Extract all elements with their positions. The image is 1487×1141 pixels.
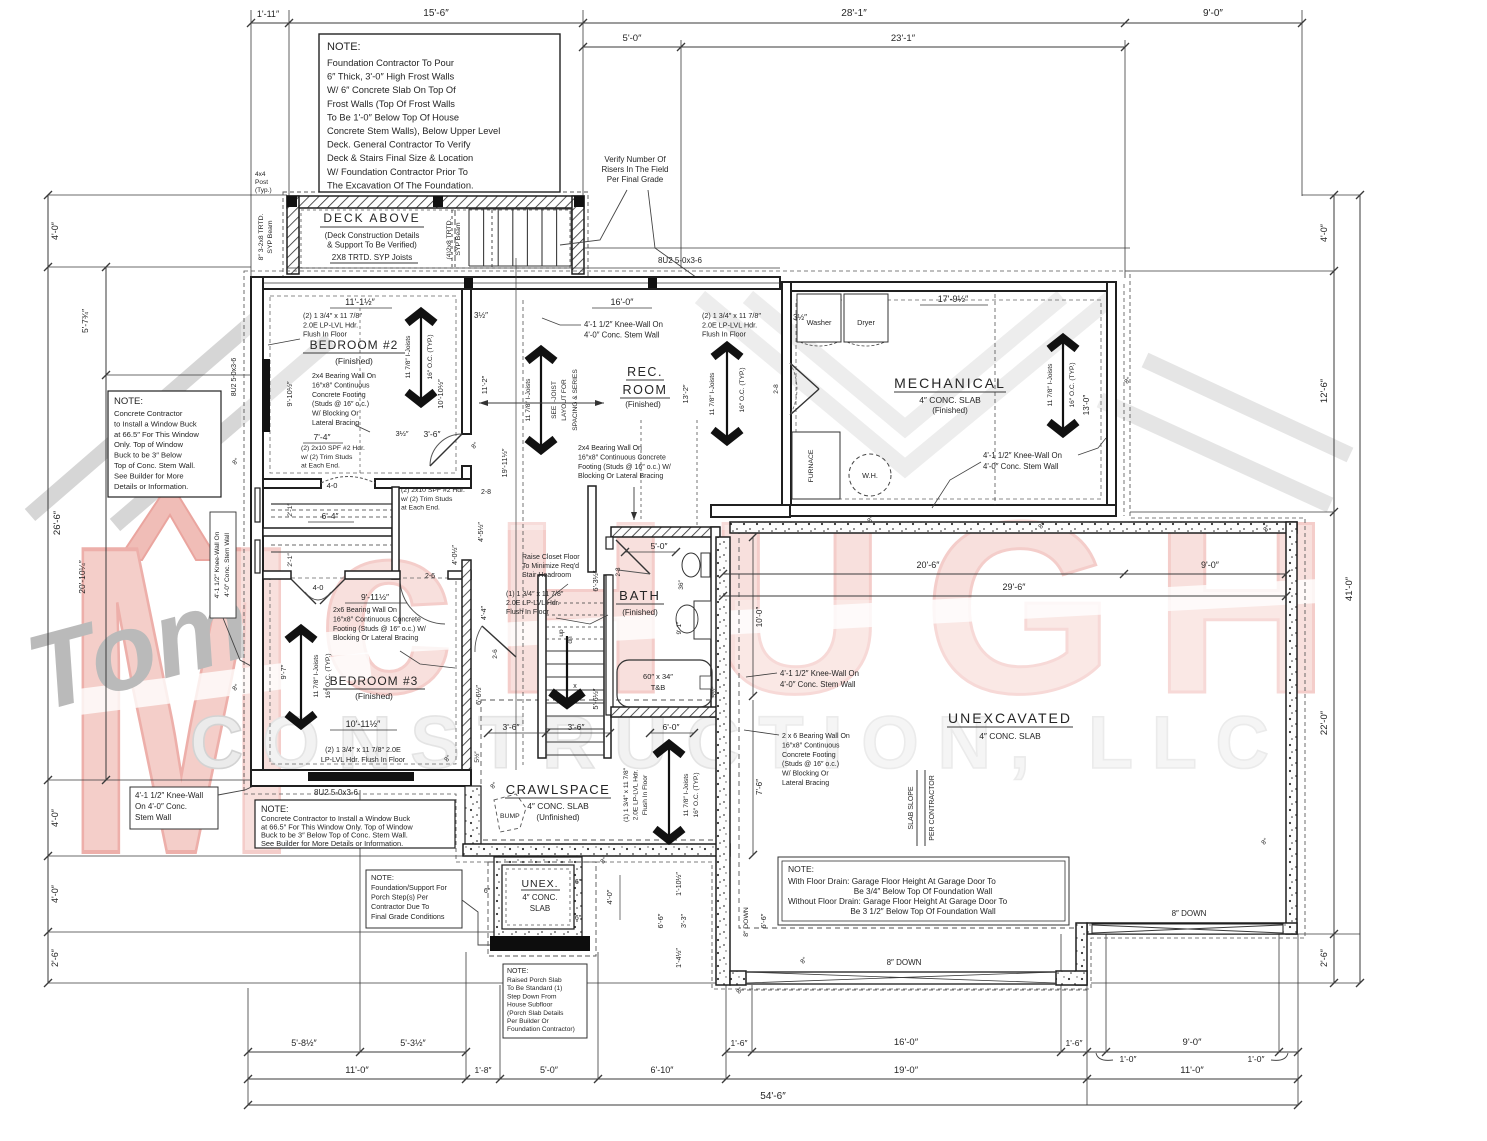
- svg-text:4'-0″: 4'-0″: [1319, 223, 1329, 242]
- svg-text:16″ O.C. (TYP.): 16″ O.C. (TYP.): [1069, 362, 1076, 407]
- svg-text:4x4: 4x4: [255, 171, 266, 178]
- svg-text:16″x8″ Continuous Concrete: 16″x8″ Continuous Concrete: [578, 454, 666, 461]
- svg-text:5'-0″: 5'-0″: [540, 1065, 559, 1075]
- svg-text:19'-0″: 19'-0″: [894, 1065, 919, 1076]
- svg-text:SYP Beam: SYP Beam: [455, 222, 462, 255]
- svg-text:9'-0″: 9'-0″: [1203, 8, 1223, 19]
- svg-text:60″ x 34″: 60″ x 34″: [643, 672, 673, 681]
- svg-text:16″x8″ Continuous: 16″x8″ Continuous: [312, 382, 370, 389]
- svg-text:41'-0″: 41'-0″: [1344, 576, 1355, 601]
- svg-text:4'-0″ Conc. Stem Wall: 4'-0″ Conc. Stem Wall: [584, 331, 660, 340]
- svg-text:11 7/8″ I-Joists: 11 7/8″ I-Joists: [405, 335, 412, 379]
- svg-text:7'-4″: 7'-4″: [314, 432, 331, 442]
- svg-text:1'-0″: 1'-0″: [1120, 1054, 1137, 1064]
- svg-text:Without Floor Drain: Garage Fl: Without Floor Drain: Garage Floor Height…: [788, 897, 1008, 906]
- svg-text:8″ DOWN: 8″ DOWN: [1172, 909, 1207, 918]
- svg-text:6'-6½″: 6'-6½″: [475, 685, 483, 705]
- svg-text:4'-0½″: 4'-0½″: [451, 545, 459, 565]
- svg-text:at Each End.: at Each End.: [301, 463, 340, 470]
- svg-text:6'-10″: 6'-10″: [651, 1065, 675, 1075]
- svg-text:6″: 6″: [575, 915, 582, 922]
- svg-text:Step Down From: Step Down From: [507, 993, 557, 1000]
- svg-text:5'-0″: 5'-0″: [623, 33, 643, 44]
- svg-text:MECHANICAL: MECHANICAL: [894, 375, 1006, 391]
- svg-text:2-6: 2-6: [492, 649, 499, 659]
- svg-text:Washer: Washer: [807, 318, 832, 327]
- svg-text:6″ Thick, 3'-0″ High Frost Wal: 6″ Thick, 3'-0″ High Frost Walls: [327, 72, 455, 82]
- svg-text:10'-10½″: 10'-10½″: [436, 379, 445, 409]
- svg-text:16'-0″: 16'-0″: [894, 1037, 919, 1048]
- svg-text:x: x: [573, 683, 577, 690]
- svg-text:NOTE:: NOTE:: [788, 864, 814, 874]
- svg-text:3½″: 3½″: [474, 311, 488, 320]
- svg-text:5'-0″: 5'-0″: [651, 541, 668, 551]
- svg-text:5½″: 5½″: [710, 686, 718, 698]
- svg-text:8″ DOWN: 8″ DOWN: [743, 907, 750, 937]
- svg-text:W/ 6″ Concrete Slab On Top Of: W/ 6″ Concrete Slab On Top Of: [327, 85, 456, 95]
- svg-text:2-8: 2-8: [615, 567, 622, 577]
- svg-text:2x4 Bearing Wall On: 2x4 Bearing Wall On: [312, 373, 376, 380]
- svg-text:Post: Post: [255, 179, 268, 186]
- svg-text:(2) 2x10 SPF #2 Hdr.: (2) 2x10 SPF #2 Hdr.: [301, 445, 365, 452]
- svg-text:6″: 6″: [484, 888, 491, 895]
- svg-text:NOTE:: NOTE:: [507, 968, 528, 975]
- svg-text:9'-11½″: 9'-11½″: [361, 592, 389, 602]
- svg-text:SLAB: SLAB: [530, 904, 550, 913]
- svg-text:11'-2″: 11'-2″: [480, 375, 489, 394]
- svg-text:NOTE:: NOTE:: [261, 804, 289, 814]
- svg-text:22'-0″: 22'-0″: [1319, 710, 1330, 735]
- svg-text:SEE I-JOIST: SEE I-JOIST: [551, 381, 558, 419]
- svg-text:ROOM: ROOM: [623, 383, 668, 397]
- svg-text:26'-6″: 26'-6″: [52, 510, 63, 535]
- svg-text:Buck to be 3″ Below: Buck to be 3″ Below: [114, 451, 182, 460]
- svg-text:Lateral Bracing: Lateral Bracing: [312, 420, 359, 427]
- svg-text:W/ Blocking Or: W/ Blocking Or: [782, 771, 829, 778]
- svg-text:(4)2x8 TRTD.: (4)2x8 TRTD.: [446, 218, 453, 259]
- svg-text:4-0: 4-0: [313, 583, 324, 592]
- svg-text:With Floor Drain: Garage Floor: With Floor Drain: Garage Floor Height At…: [788, 877, 996, 886]
- svg-text:Footing (Studs @ 16″ o.c.) W/: Footing (Studs @ 16″ o.c.) W/: [333, 626, 426, 633]
- svg-text:Final Grade Conditions: Final Grade Conditions: [371, 912, 445, 921]
- svg-text:1'-8″: 1'-8″: [475, 1065, 492, 1075]
- svg-text:Blocking Or Lateral Bracing: Blocking Or Lateral Bracing: [333, 635, 418, 642]
- svg-text:2 x 6 Bearing Wall On: 2 x 6 Bearing Wall On: [782, 733, 850, 740]
- svg-text:W.H.: W.H.: [862, 471, 878, 480]
- svg-text:4'-4″: 4'-4″: [481, 606, 488, 620]
- svg-text:16″x8″ Continuous Concrete: 16″x8″ Continuous Concrete: [333, 616, 421, 623]
- svg-text:W/ Blocking Or: W/ Blocking Or: [312, 411, 359, 418]
- svg-text:11 7/8″ I-Joists: 11 7/8″ I-Joists: [709, 372, 716, 416]
- svg-text:3'-6″: 3'-6″: [503, 722, 520, 732]
- svg-text:Flush In Floor: Flush In Floor: [303, 330, 348, 339]
- svg-text:Raised Porch Slab: Raised Porch Slab: [507, 977, 562, 984]
- svg-text:Per Final Grade: Per Final Grade: [607, 175, 664, 184]
- svg-text:10'-0″: 10'-0″: [755, 607, 764, 628]
- svg-text:20'-6″: 20'-6″: [917, 560, 941, 570]
- svg-text:NOTE:: NOTE:: [327, 41, 361, 53]
- svg-text:2'-1″: 2'-1″: [287, 503, 294, 517]
- svg-text:6'-6″: 6'-6″: [656, 913, 665, 928]
- svg-text:11'-1½″: 11'-1½″: [345, 297, 376, 307]
- svg-text:Porch Step(s) Per: Porch Step(s) Per: [371, 893, 429, 902]
- svg-text:11'-0″: 11'-0″: [1180, 1065, 1204, 1076]
- svg-text:4'-0″ Conc. Stem Wall: 4'-0″ Conc. Stem Wall: [224, 533, 231, 597]
- svg-text:W/ Foundation Contractor Prior: W/ Foundation Contractor Prior To: [327, 167, 468, 177]
- svg-text:at Each End.: at Each End.: [401, 505, 440, 512]
- svg-text:11 7/8″ I-Joists: 11 7/8″ I-Joists: [525, 378, 532, 422]
- svg-text:& Support To Be Verified): & Support To Be Verified): [327, 241, 417, 250]
- svg-text:1'-6″: 1'-6″: [731, 1038, 748, 1048]
- svg-text:1'-10½″: 1'-10½″: [675, 872, 683, 896]
- svg-text:(Porch Slab Details: (Porch Slab Details: [507, 1010, 564, 1017]
- svg-text:3'-6″: 3'-6″: [424, 429, 441, 439]
- svg-text:LP-LVL Hdr. Flush In Floor: LP-LVL Hdr. Flush In Floor: [321, 755, 406, 764]
- svg-text:8U2 5-0x3-6: 8U2 5-0x3-6: [658, 256, 703, 265]
- svg-text:PER CONTRACTOR: PER CONTRACTOR: [929, 775, 936, 841]
- svg-text:6'-0″: 6'-0″: [663, 722, 680, 732]
- svg-text:29'-6″: 29'-6″: [1003, 582, 1027, 592]
- svg-text:2.0E LP-LVL Hdr.: 2.0E LP-LVL Hdr.: [303, 320, 358, 329]
- svg-text:16″ O.C. (TYP.): 16″ O.C. (TYP.): [739, 367, 746, 412]
- svg-text:16″x8″ Continuous: 16″x8″ Continuous: [782, 742, 840, 749]
- svg-text:Details or Information.: Details or Information.: [114, 482, 188, 491]
- svg-text:9'-0″: 9'-0″: [1183, 1037, 1203, 1048]
- svg-text:2-8: 2-8: [773, 384, 780, 394]
- svg-text:Stair Headroom: Stair Headroom: [522, 572, 571, 579]
- svg-text:9'-0″: 9'-0″: [1201, 560, 1220, 570]
- svg-text:To Minimize Req'd: To Minimize Req'd: [522, 563, 579, 570]
- svg-text:Footing (Studs @ 16″ o.c.) W/: Footing (Studs @ 16″ o.c.) W/: [578, 464, 671, 471]
- svg-text:BATH: BATH: [619, 588, 661, 603]
- svg-text:Flush In Floor: Flush In Floor: [642, 774, 649, 815]
- svg-text:10'-11½″: 10'-11½″: [346, 719, 382, 729]
- svg-text:Foundation Contractor): Foundation Contractor): [507, 1026, 575, 1033]
- svg-text:4-0: 4-0: [327, 481, 338, 490]
- svg-text:Top of Conc. Stem Wall.: Top of Conc. Stem Wall.: [114, 461, 195, 470]
- svg-text:Be 3/4″ Below Top Of Foundatio: Be 3/4″ Below Top Of Foundation Wall: [854, 887, 993, 896]
- svg-text:2X8 TRTD. SYP Joists: 2X8 TRTD. SYP Joists: [332, 253, 412, 262]
- svg-text:54'-6″: 54'-6″: [760, 1091, 786, 1102]
- svg-text:3½″: 3½″: [793, 313, 807, 322]
- svg-text:15'-6″: 15'-6″: [423, 8, 449, 19]
- svg-text:(Finished): (Finished): [622, 608, 658, 617]
- svg-text:UNEXCAVATED: UNEXCAVATED: [948, 710, 1072, 726]
- svg-text:1'-6″: 1'-6″: [1066, 1038, 1083, 1048]
- svg-text:Foundation Contractor To Pour: Foundation Contractor To Pour: [327, 58, 454, 68]
- svg-text:23'-1″: 23'-1″: [891, 33, 916, 44]
- svg-text:6'-4″: 6'-4″: [322, 511, 339, 521]
- svg-text:(Finished): (Finished): [625, 400, 661, 409]
- svg-text:(2) 1 3/4″ x 11 7/8″: (2) 1 3/4″ x 11 7/8″: [702, 311, 761, 320]
- svg-text:(Finished): (Finished): [932, 406, 968, 415]
- svg-text:3'-6″: 3'-6″: [568, 722, 585, 732]
- svg-text:REC.: REC.: [627, 365, 663, 379]
- svg-text:Only. Top of Window: Only. Top of Window: [114, 440, 183, 449]
- svg-text:28'-1″: 28'-1″: [841, 8, 867, 19]
- svg-text:8U2 5-0x3-6: 8U2 5-0x3-6: [231, 358, 238, 397]
- svg-text:9'-1″: 9'-1″: [676, 621, 683, 635]
- svg-text:(Unfinished): (Unfinished): [536, 813, 579, 822]
- svg-text:BEDROOM #2: BEDROOM #2: [310, 338, 399, 352]
- svg-text:2-6: 2-6: [425, 573, 435, 580]
- svg-text:The Excavation Of The Foundati: The Excavation Of The Foundation.: [327, 180, 474, 190]
- svg-text:4″ CONC. SLAB: 4″ CONC. SLAB: [527, 801, 589, 811]
- svg-text:8U2 5-0x3-6: 8U2 5-0x3-6: [314, 788, 359, 797]
- svg-text:T&B: T&B: [651, 683, 666, 692]
- svg-text:5'-7¾″: 5'-7¾″: [80, 309, 90, 333]
- svg-text:4'-1 1/2″ Knee-Wall On: 4'-1 1/2″ Knee-Wall On: [780, 669, 859, 678]
- svg-text:Deck. General Contractor To Ve: Deck. General Contractor To Verify: [327, 140, 471, 150]
- svg-text:2.0E LP-LVL Hdr.: 2.0E LP-LVL Hdr.: [633, 770, 640, 821]
- svg-text:3'-3″: 3'-3″: [681, 914, 688, 928]
- svg-text:up: up: [558, 629, 565, 637]
- svg-text:12'-6″: 12'-6″: [1319, 378, 1330, 403]
- svg-text:Dryer: Dryer: [857, 318, 875, 327]
- svg-text:4″ CONC. SLAB: 4″ CONC. SLAB: [979, 731, 1041, 741]
- svg-text:17'-9½″: 17'-9½″: [938, 294, 969, 304]
- svg-text:5'-8½″: 5'-8½″: [291, 1038, 317, 1048]
- svg-text:2x4 Bearing Wall On: 2x4 Bearing Wall On: [578, 445, 642, 452]
- svg-text:5'-6½″: 5'-6½″: [591, 688, 600, 710]
- svg-text:9'-10½″: 9'-10½″: [285, 381, 294, 407]
- svg-text:(1) 1 3/4″ x 11 7/8″: (1) 1 3/4″ x 11 7/8″: [623, 767, 630, 822]
- svg-text:5'-3½″: 5'-3½″: [400, 1038, 426, 1048]
- svg-text:4″ CONC.: 4″ CONC.: [522, 893, 557, 902]
- svg-text:16'-0″: 16'-0″: [611, 297, 635, 307]
- svg-text:Concrete Footing: Concrete Footing: [782, 752, 836, 759]
- svg-text:House Subfloor: House Subfloor: [507, 1002, 553, 1009]
- svg-text:11 7/8″ I-Joists: 11 7/8″ I-Joists: [1047, 363, 1054, 407]
- svg-text:Raise Closet Floor: Raise Closet Floor: [522, 554, 580, 561]
- svg-text:6'-3½″: 6'-3½″: [591, 570, 600, 592]
- svg-text:Stem Wall: Stem Wall: [135, 813, 171, 822]
- svg-text:Deck & Stairs Final Size & Loc: Deck & Stairs Final Size & Location: [327, 153, 473, 163]
- svg-text:(Finished): (Finished): [355, 691, 393, 701]
- svg-text:UNEX.: UNEX.: [521, 878, 558, 890]
- svg-text:8″ 3-2x8 TRTD.: 8″ 3-2x8 TRTD.: [258, 214, 265, 261]
- svg-text:Concrete Stem Walls), Below Up: Concrete Stem Walls), Below Upper Level: [327, 126, 500, 136]
- svg-text:NOTE:: NOTE:: [114, 396, 143, 407]
- svg-text:LAYOUT FOR: LAYOUT FOR: [561, 379, 568, 421]
- svg-text:9'-7″: 9'-7″: [279, 664, 288, 679]
- svg-text:13'-2″: 13'-2″: [681, 384, 690, 403]
- svg-text:(2) 2x10 SPF #2 Hdr.: (2) 2x10 SPF #2 Hdr.: [401, 487, 465, 494]
- svg-text:Frost Walls (Top Of Frost Wall: Frost Walls (Top Of Frost Walls: [327, 99, 455, 109]
- svg-text:6″: 6″: [575, 879, 582, 886]
- svg-text:(Studs @ 16″ o.c.): (Studs @ 16″ o.c.): [782, 761, 839, 768]
- svg-text:See Builder for More: See Builder for More: [114, 471, 184, 480]
- svg-text:4'-0″: 4'-0″: [50, 221, 60, 240]
- svg-text:DECK ABOVE: DECK ABOVE: [323, 211, 420, 225]
- svg-text:4'-1 1/2″ Knee-Wall On: 4'-1 1/2″ Knee-Wall On: [214, 531, 221, 598]
- svg-text:(2) 1 3/4″ x 11 7/8″ 2.0E: (2) 1 3/4″ x 11 7/8″ 2.0E: [325, 745, 401, 754]
- svg-text:w/ (2) Trim Studs: w/ (2) Trim Studs: [400, 496, 453, 503]
- svg-text:Contractor Due To: Contractor Due To: [371, 902, 429, 911]
- svg-text:1'-4½″: 1'-4½″: [675, 948, 683, 968]
- svg-text:1'-0″: 1'-0″: [1248, 1054, 1265, 1064]
- svg-text:Be 3 1/2″ Below Top Of Foundat: Be 3 1/2″ Below Top Of Foundation Wall: [850, 907, 996, 916]
- svg-text:2'-1″: 2'-1″: [287, 553, 294, 567]
- svg-text:3½″: 3½″: [395, 429, 408, 438]
- svg-text:1'-11″: 1'-11″: [257, 9, 280, 19]
- svg-text:(Finished): (Finished): [335, 356, 373, 366]
- svg-text:Concrete Contractor: Concrete Contractor: [114, 409, 183, 418]
- svg-text:(1) 1 3/4″ x 11 7/8″: (1) 1 3/4″ x 11 7/8″: [506, 591, 564, 598]
- svg-text:2-8: 2-8: [481, 489, 491, 496]
- svg-text:20'-10¼″: 20'-10¼″: [77, 560, 87, 593]
- svg-text:4'-0″: 4'-0″: [605, 889, 614, 904]
- svg-text:13'-0″: 13'-0″: [1082, 395, 1091, 416]
- svg-text:To Be 1'-0″ Below Top Of House: To Be 1'-0″ Below Top Of House: [327, 112, 459, 122]
- svg-text:NOTE:: NOTE:: [371, 873, 394, 882]
- svg-text:SPACING & SERIES: SPACING & SERIES: [572, 369, 579, 431]
- svg-text:BUMP: BUMP: [500, 813, 520, 820]
- svg-text:16″ O.C. (TYP.): 16″ O.C. (TYP.): [693, 772, 700, 817]
- svg-text:Foundation/Support For: Foundation/Support For: [371, 883, 448, 892]
- svg-text:4″ CONC. SLAB: 4″ CONC. SLAB: [919, 395, 981, 405]
- svg-text:Flush In Floor: Flush In Floor: [702, 330, 747, 339]
- svg-text:On 4'-0″ Conc.: On 4'-0″ Conc.: [135, 802, 187, 811]
- svg-text:4'-0″: 4'-0″: [50, 884, 60, 903]
- svg-text:To Be Standard (1): To Be Standard (1): [507, 985, 562, 992]
- svg-text:(Typ.): (Typ.): [255, 187, 272, 194]
- svg-text:4'-1 1/2″ Knee-Wall: 4'-1 1/2″ Knee-Wall: [135, 791, 203, 800]
- svg-text:11'-0″: 11'-0″: [345, 1065, 369, 1076]
- svg-text:4'-5½″: 4'-5½″: [477, 522, 485, 542]
- svg-text:BEDROOM #3: BEDROOM #3: [330, 674, 419, 688]
- svg-text:Risers In The Field: Risers In The Field: [602, 165, 669, 174]
- svg-text:2'-6″: 2'-6″: [50, 948, 60, 967]
- svg-text:(2) 1 3/4″ x 11 7/8″: (2) 1 3/4″ x 11 7/8″: [303, 311, 362, 320]
- svg-text:See Builder for More Details o: See Builder for More Details or Informat…: [261, 839, 403, 848]
- svg-text:to Install a Window Buck: to Install a Window Buck: [114, 419, 197, 428]
- svg-text:4'-1 1/2″ Knee-Wall On: 4'-1 1/2″ Knee-Wall On: [584, 320, 663, 329]
- svg-text:5½″: 5½″: [473, 751, 481, 763]
- svg-text:w/ (2) Trim Studs: w/ (2) Trim Studs: [300, 454, 353, 461]
- svg-text:6'-6″: 6'-6″: [759, 913, 768, 928]
- svg-text:4'-0″ Conc. Stem Wall: 4'-0″ Conc. Stem Wall: [780, 680, 856, 689]
- svg-text:dn: dn: [567, 636, 574, 644]
- svg-text:SYP Beam: SYP Beam: [267, 220, 274, 253]
- svg-text:2.0E LP-LVL Hdr.: 2.0E LP-LVL Hdr.: [506, 600, 560, 607]
- svg-text:4'-0″ Conc. Stem Wall: 4'-0″ Conc. Stem Wall: [983, 462, 1059, 471]
- svg-text:7'-6″: 7'-6″: [755, 779, 764, 795]
- svg-text:4'-0″: 4'-0″: [50, 808, 60, 827]
- svg-text:CRAWLSPACE: CRAWLSPACE: [506, 782, 611, 797]
- svg-text:Blocking Or Lateral Bracing: Blocking Or Lateral Bracing: [578, 473, 663, 480]
- svg-text:2.0E LP-LVL Hdr.: 2.0E LP-LVL Hdr.: [702, 320, 757, 329]
- svg-text:16″ O.C. (TYP.): 16″ O.C. (TYP.): [427, 334, 434, 379]
- svg-text:2x6 Bearing Wall On: 2x6 Bearing Wall On: [333, 607, 397, 614]
- svg-text:at 66.5″ For This Window: at 66.5″ For This Window: [114, 430, 199, 439]
- svg-text:FURNACE: FURNACE: [808, 449, 815, 482]
- svg-text:Verify Number Of: Verify Number Of: [604, 155, 666, 164]
- svg-text:Flush In Floor: Flush In Floor: [506, 609, 549, 616]
- svg-text:Concrete Footing: Concrete Footing: [312, 392, 366, 399]
- svg-text:Lateral Bracing: Lateral Bracing: [782, 780, 829, 787]
- svg-text:11 7/8″ I-Joists: 11 7/8″ I-Joists: [313, 654, 320, 698]
- svg-text:2'-6″: 2'-6″: [1319, 948, 1329, 967]
- svg-text:(Studs @ 16″ o.c.): (Studs @ 16″ o.c.): [312, 401, 369, 408]
- svg-text:36″: 36″: [678, 580, 685, 590]
- svg-text:Per Builder Or: Per Builder Or: [507, 1018, 550, 1025]
- svg-text:8″ DOWN: 8″ DOWN: [887, 958, 922, 967]
- svg-text:11 7/8″ I-Joists: 11 7/8″ I-Joists: [683, 773, 690, 817]
- svg-text:(Deck Construction Details: (Deck Construction Details: [325, 231, 420, 240]
- svg-text:19'-11½″: 19'-11½″: [500, 448, 509, 477]
- svg-text:16″ O.C. (TYP.): 16″ O.C. (TYP.): [325, 653, 332, 698]
- svg-text:SLAB SLOPE: SLAB SLOPE: [908, 786, 915, 830]
